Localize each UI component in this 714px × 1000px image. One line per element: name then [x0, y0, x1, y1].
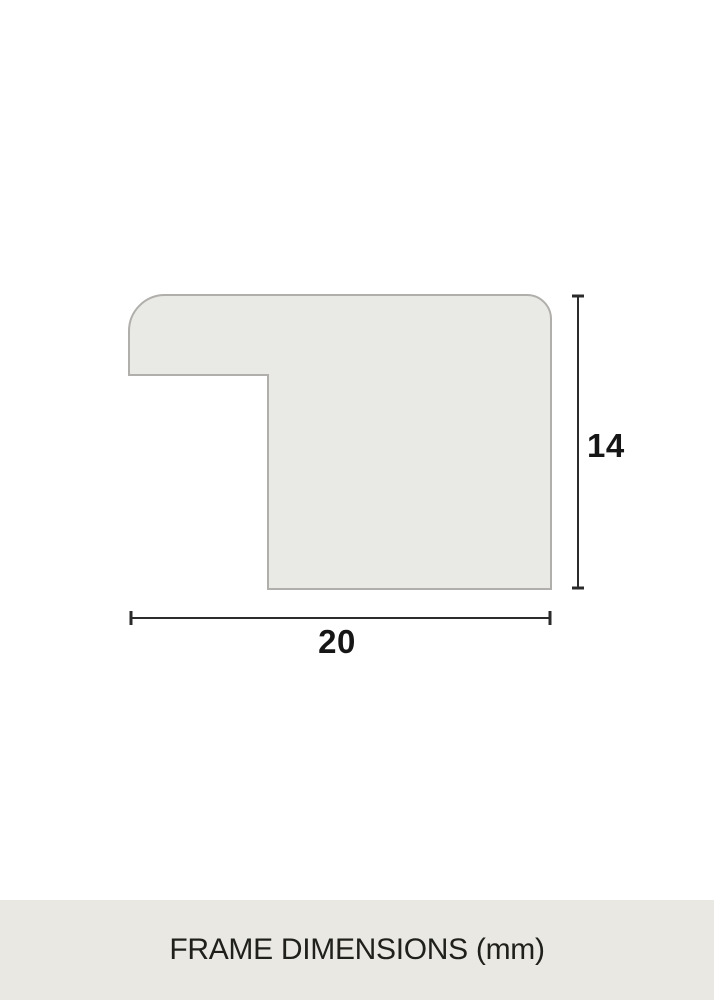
height-dimension-label: 14: [587, 427, 625, 464]
height-dimension-line: [572, 296, 584, 588]
frame-profile-svg: 14 20: [0, 0, 714, 900]
width-dimension-label: 20: [318, 623, 356, 660]
frame-profile-diagram: 14 20: [0, 0, 714, 900]
frame-profile-shape: [129, 295, 551, 589]
footer-caption-bar: FRAME DIMENSIONS (mm): [0, 900, 714, 1000]
footer-caption: FRAME DIMENSIONS (mm): [169, 933, 544, 967]
